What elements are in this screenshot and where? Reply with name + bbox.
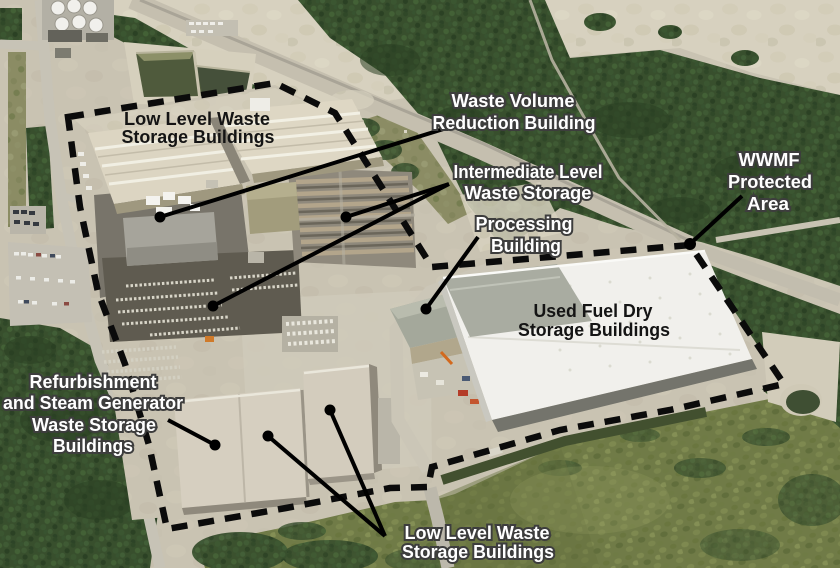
svg-text:and Steam Generator: and Steam Generator xyxy=(3,393,183,413)
svg-text:Intermediate Level: Intermediate Level xyxy=(454,162,603,182)
svg-text:Protected: Protected xyxy=(728,172,812,192)
svg-text:Buildings: Buildings xyxy=(53,436,133,456)
svg-text:Waste Storage: Waste Storage xyxy=(32,415,156,435)
svg-text:WWMF: WWMF xyxy=(739,150,800,170)
svg-text:Storage Buildings: Storage Buildings xyxy=(402,542,554,562)
svg-text:Storage Buildings: Storage Buildings xyxy=(122,127,275,147)
svg-text:Low Level Waste: Low Level Waste xyxy=(124,109,270,129)
svg-text:Waste Storage: Waste Storage xyxy=(465,183,592,203)
svg-text:Refurbishment: Refurbishment xyxy=(30,372,157,392)
svg-text:Storage Buildings: Storage Buildings xyxy=(518,320,670,340)
svg-text:Area: Area xyxy=(747,194,790,214)
svg-text:Used Fuel Dry: Used Fuel Dry xyxy=(534,301,653,321)
svg-text:Low Level Waste: Low Level Waste xyxy=(405,523,550,543)
svg-text:Reduction Building: Reduction Building xyxy=(433,113,596,133)
svg-text:Building: Building xyxy=(491,236,561,256)
svg-text:Processing: Processing xyxy=(476,214,573,234)
svg-text:Waste Volume: Waste Volume xyxy=(452,91,575,111)
